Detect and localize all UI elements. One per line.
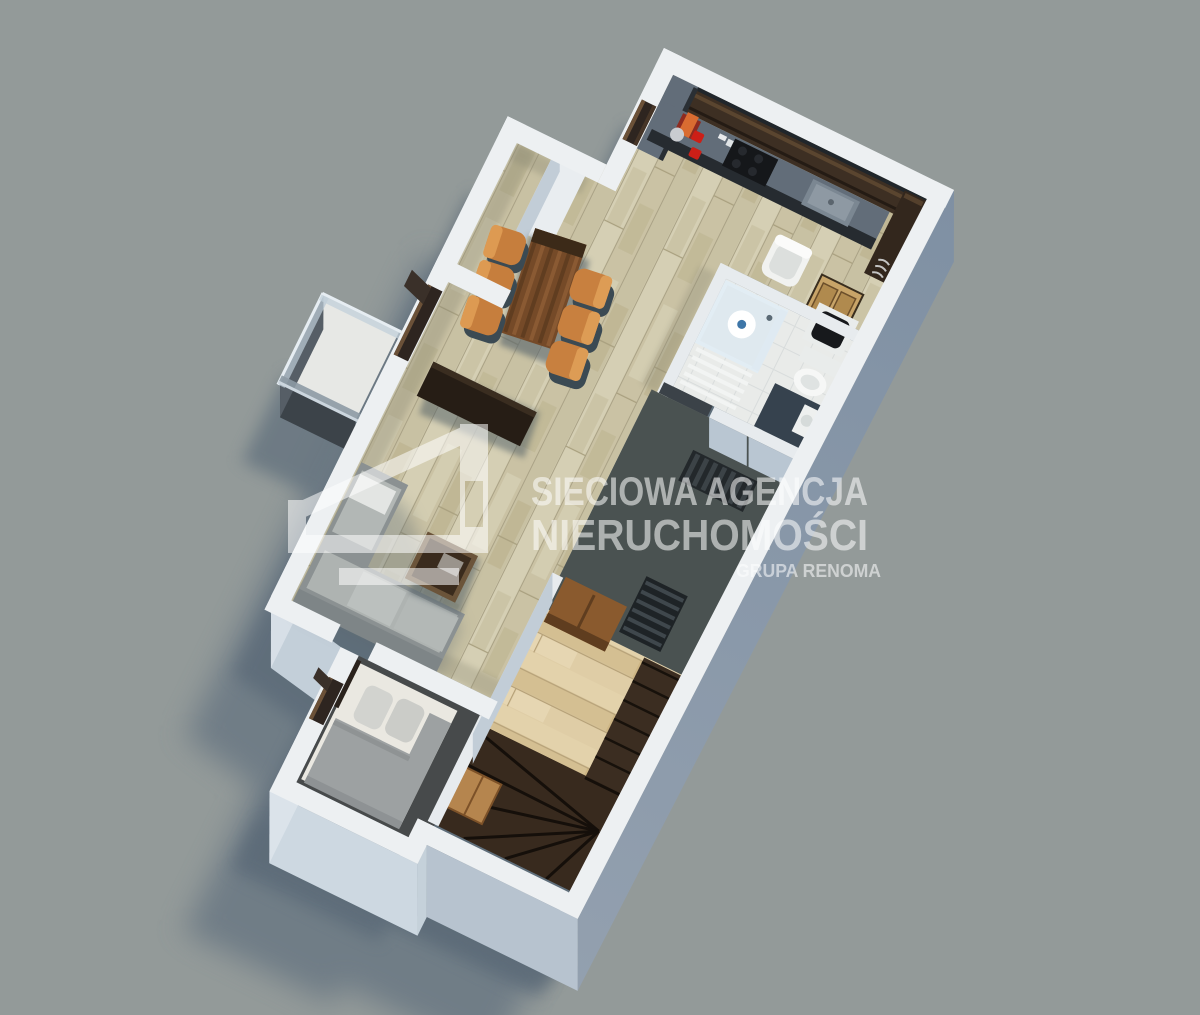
svg-text:GRUPA RENOMA: GRUPA RENOMA <box>736 561 881 581</box>
svg-text:SIECIOWA AGENCJA: SIECIOWA AGENCJA <box>531 470 868 514</box>
svg-text:NIERUCHOMOŚCI: NIERUCHOMOŚCI <box>531 510 868 560</box>
